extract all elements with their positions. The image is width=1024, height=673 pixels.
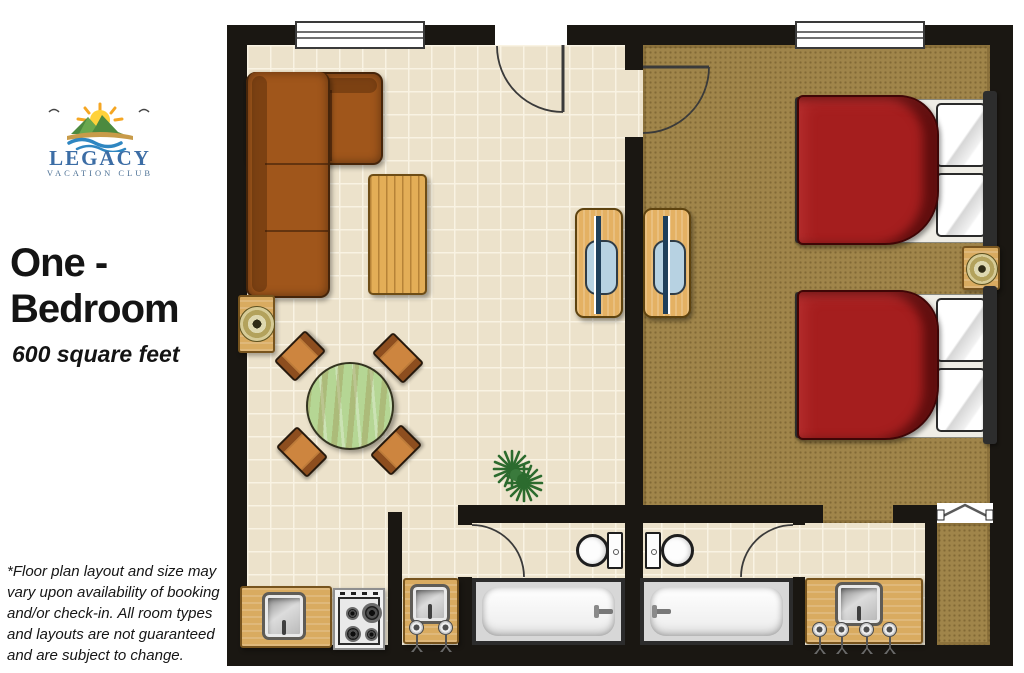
toilet-1-bowl: [576, 534, 609, 567]
faucet: [857, 606, 861, 621]
vanity-sink-1: [410, 584, 450, 624]
coffee-table: [368, 174, 427, 295]
bathtub-1: [472, 578, 625, 645]
nightstand-lamp: [966, 253, 998, 285]
burner: [362, 603, 382, 623]
floor-plan: [227, 20, 1013, 666]
bathroom1-door-arc: [472, 525, 524, 577]
room-title-line1: One -: [10, 240, 179, 286]
bathroom2-door-arc: [741, 525, 793, 577]
vanity-knob: [834, 622, 849, 637]
bird-icon: [49, 110, 59, 113]
toilet-2-tank: [645, 532, 661, 569]
double-bed-2: [795, 290, 1000, 440]
room-title-line2: Bedroom: [10, 286, 179, 332]
sectional-sofa: [246, 72, 383, 298]
branding-sidebar: LEGACY VACATION CLUB One - Bedroom 600 s…: [0, 0, 227, 673]
vanity-knob: [859, 622, 874, 637]
faucet: [428, 604, 432, 619]
burner: [345, 626, 361, 642]
tv-stand-bedroom: [643, 208, 691, 318]
pillow: [936, 103, 986, 167]
double-bed-1: [795, 95, 1000, 245]
kitchen-sink: [262, 592, 306, 640]
table-lamp: [239, 306, 275, 342]
tub-faucet: [652, 609, 671, 614]
faucet: [282, 620, 286, 635]
closet-bifold-door: [937, 505, 993, 520]
vanity-knob: [438, 620, 453, 635]
bird-icon: [139, 110, 149, 113]
tub-faucet: [594, 609, 613, 614]
headboard: [983, 286, 997, 444]
room-size: 600 square feet: [12, 341, 179, 368]
potted-plant: [486, 445, 550, 509]
burner: [346, 607, 359, 620]
disclaimer-text: *Floor plan layout and size may vary upo…: [7, 561, 220, 666]
pillow: [936, 173, 986, 237]
tv-screen: [663, 216, 670, 314]
vanity-sink-2: [835, 582, 883, 626]
entry-door-arc: [497, 46, 563, 112]
vanity-knob: [812, 622, 827, 637]
red-duvet: [797, 95, 939, 245]
vanity-knob: [409, 620, 424, 635]
headboard: [983, 91, 997, 249]
pillow: [936, 368, 986, 432]
stove-cooktop: [333, 588, 385, 650]
legacy-vacation-club-logo-icon: [35, 100, 165, 152]
tv-stand-living: [575, 208, 623, 318]
burner: [365, 628, 378, 641]
dining-table: [306, 362, 394, 450]
bathtub-2: [640, 578, 793, 645]
bedroom-door-arc: [643, 67, 709, 133]
toilet-2-bowl: [661, 534, 694, 567]
tv-screen: [594, 216, 601, 314]
page-title: One - Bedroom: [10, 240, 179, 332]
toilet-1-tank: [607, 532, 623, 569]
red-duvet: [797, 290, 939, 440]
brand-subtitle: VACATION CLUB: [0, 168, 200, 178]
vanity-knob: [882, 622, 897, 637]
pillow: [936, 298, 986, 362]
page: { "sidebar": { "logo": { "brand": "LEGAC…: [0, 0, 1024, 673]
